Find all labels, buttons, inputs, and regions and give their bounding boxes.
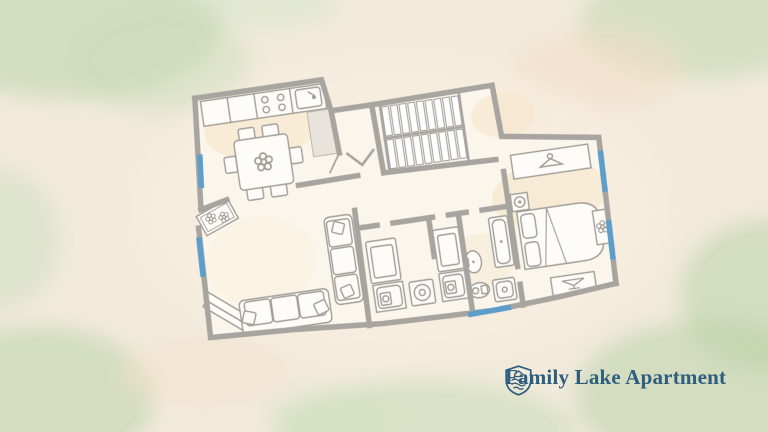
brand-logo: Family Lake Apartment — [505, 365, 726, 390]
washing-machine — [373, 281, 407, 312]
lake-shield-icon — [505, 365, 532, 396]
brand-name: Family Lake Apartment — [505, 365, 726, 390]
sofa-pillow — [242, 311, 256, 325]
pillow — [520, 213, 537, 239]
kitchen-sink — [295, 87, 322, 109]
sofa-pillow — [331, 221, 344, 234]
shower-tray — [492, 277, 517, 302]
pillow — [524, 241, 541, 267]
washing-machine — [439, 270, 469, 301]
laundry-cabinet — [365, 238, 401, 284]
dryer-drum — [409, 279, 436, 306]
nightstand-lamp — [510, 192, 529, 211]
scene: Family Lake Apartment — [0, 0, 768, 432]
